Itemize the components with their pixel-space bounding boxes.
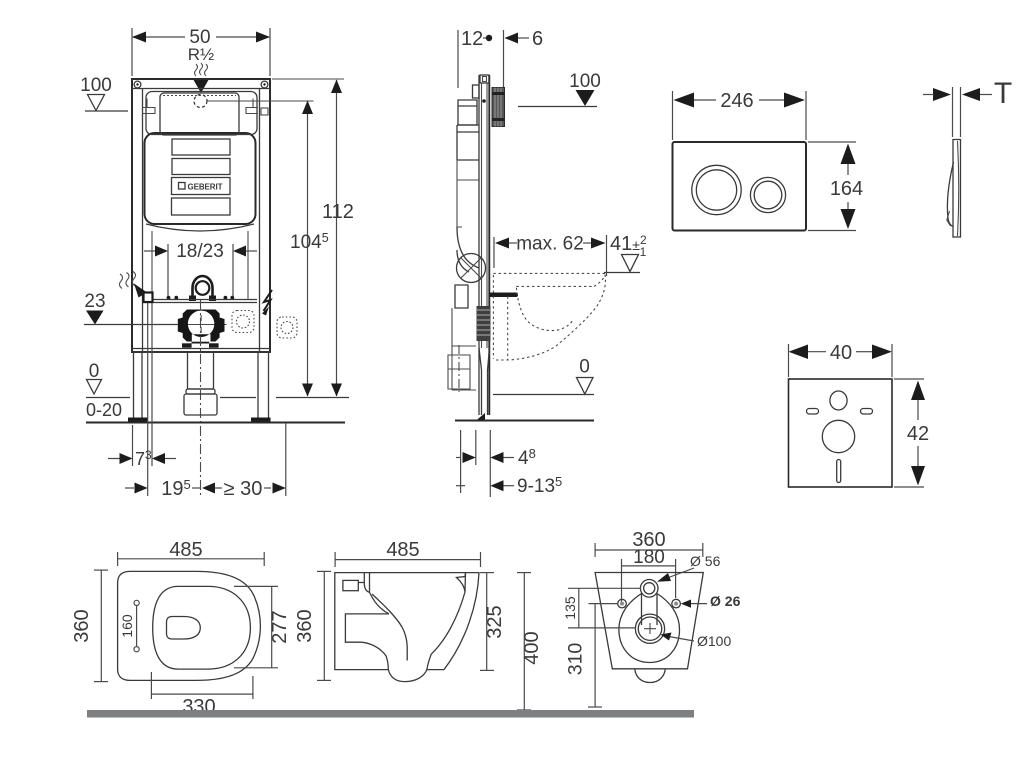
svg-text:18/23: 18/23 — [176, 241, 224, 262]
svg-text:23: 23 — [84, 291, 105, 312]
svg-text:485: 485 — [169, 539, 202, 561]
svg-text:246: 246 — [720, 90, 753, 112]
svg-text:≥ 30: ≥ 30 — [224, 478, 263, 500]
svg-text:277: 277 — [269, 610, 291, 643]
svg-text:Ø 26: Ø 26 — [710, 593, 741, 609]
svg-text:400: 400 — [521, 631, 543, 664]
svg-text:0: 0 — [579, 357, 590, 378]
svg-text:12: 12 — [461, 28, 483, 50]
svg-text:T: T — [994, 77, 1012, 110]
svg-text:360: 360 — [294, 609, 316, 642]
svg-text:160: 160 — [119, 614, 135, 638]
svg-text:R½: R½ — [188, 45, 214, 64]
svg-text:164: 164 — [830, 178, 863, 200]
svg-text:100: 100 — [569, 71, 601, 92]
svg-text:Ø 56: Ø 56 — [690, 553, 721, 569]
svg-text:310: 310 — [565, 643, 587, 676]
svg-text:325: 325 — [484, 605, 506, 638]
svg-text:40: 40 — [830, 342, 852, 364]
svg-text:180: 180 — [633, 547, 665, 568]
svg-text:100: 100 — [80, 75, 112, 96]
svg-text:112: 112 — [322, 201, 354, 223]
svg-text:135: 135 — [562, 596, 578, 620]
svg-text:6: 6 — [532, 28, 543, 50]
svg-text:42: 42 — [907, 423, 929, 445]
svg-text:Ø100: Ø100 — [697, 633, 731, 649]
svg-text:GEBERIT: GEBERIT — [188, 183, 223, 192]
svg-text:max. 62: max. 62 — [516, 234, 584, 255]
svg-text:485: 485 — [386, 539, 419, 561]
svg-text:0-20: 0-20 — [86, 400, 122, 420]
svg-text:360: 360 — [71, 609, 93, 642]
